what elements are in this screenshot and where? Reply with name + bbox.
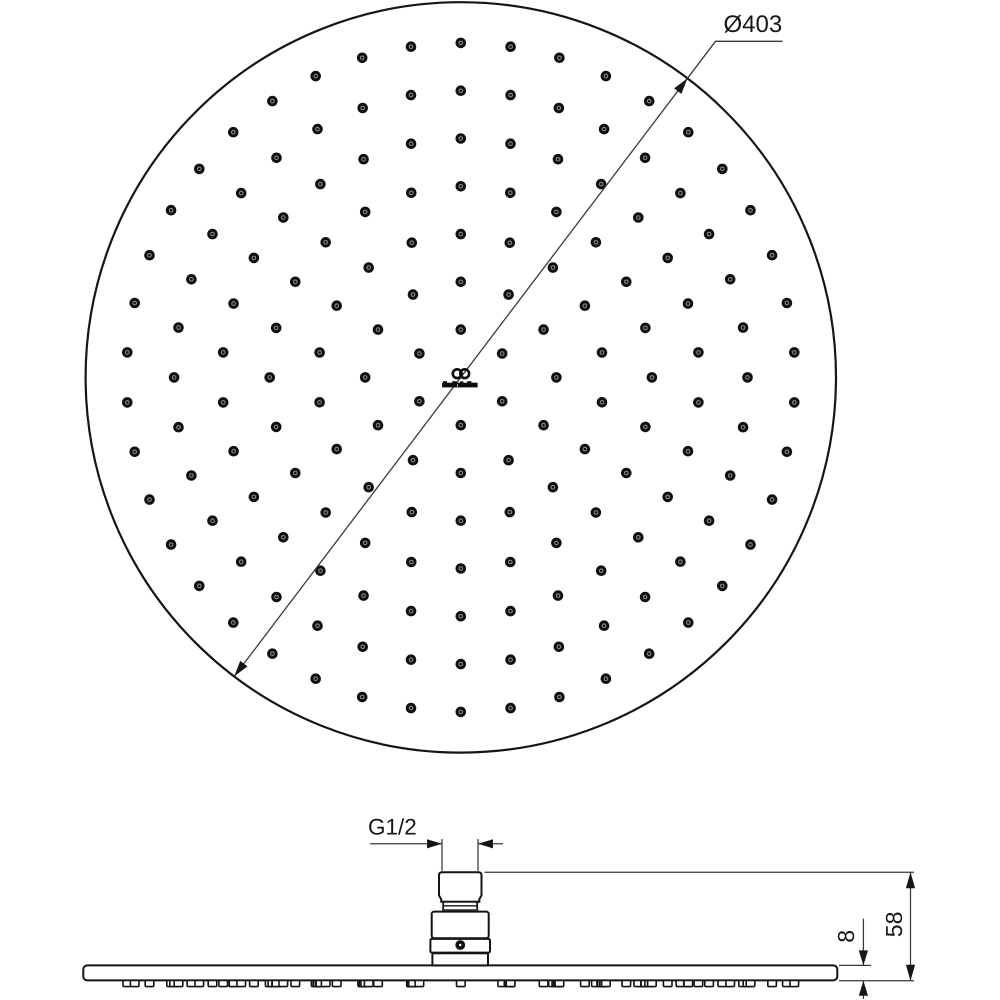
svg-text:G1/2: G1/2 [368, 815, 417, 840]
svg-text:58: 58 [881, 912, 907, 938]
svg-text:Ø403: Ø403 [724, 11, 783, 38]
svg-text:8: 8 [833, 930, 859, 943]
